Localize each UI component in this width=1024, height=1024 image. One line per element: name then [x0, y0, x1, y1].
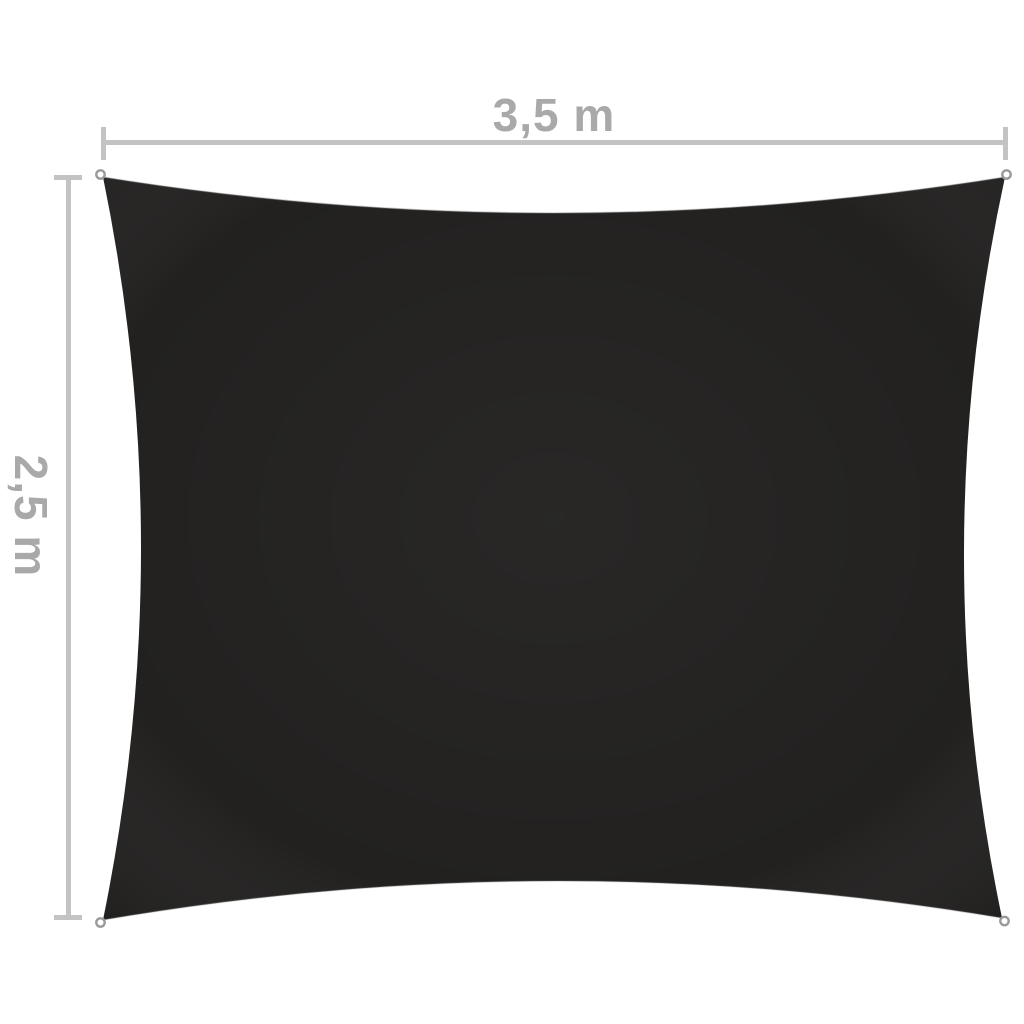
height-dimension-tick-top	[54, 175, 82, 180]
corner-eyelet-top-right	[1002, 170, 1010, 178]
height-dimension-tick-bottom	[54, 915, 82, 920]
height-dimension-line	[54, 175, 82, 920]
shade-sail-diagram	[0, 0, 1024, 1024]
corner-eyelet-bottom-right	[1000, 917, 1008, 925]
width-dimension-tick-left	[101, 127, 106, 160]
width-dimension-tick-right	[1003, 127, 1008, 160]
product-image-canvas: 3,5 m 2,5 m	[0, 0, 1024, 1024]
shade-sail	[103, 177, 1005, 920]
shade-sail-sheen	[103, 177, 1005, 920]
corner-eyelet-bottom-left	[96, 918, 104, 926]
width-dimension-label: 3,5 m	[493, 92, 616, 138]
height-dimension-rule	[66, 177, 71, 918]
corner-eyelet-top-left	[96, 170, 104, 178]
height-dimension-label: 2,5 m	[8, 455, 54, 578]
